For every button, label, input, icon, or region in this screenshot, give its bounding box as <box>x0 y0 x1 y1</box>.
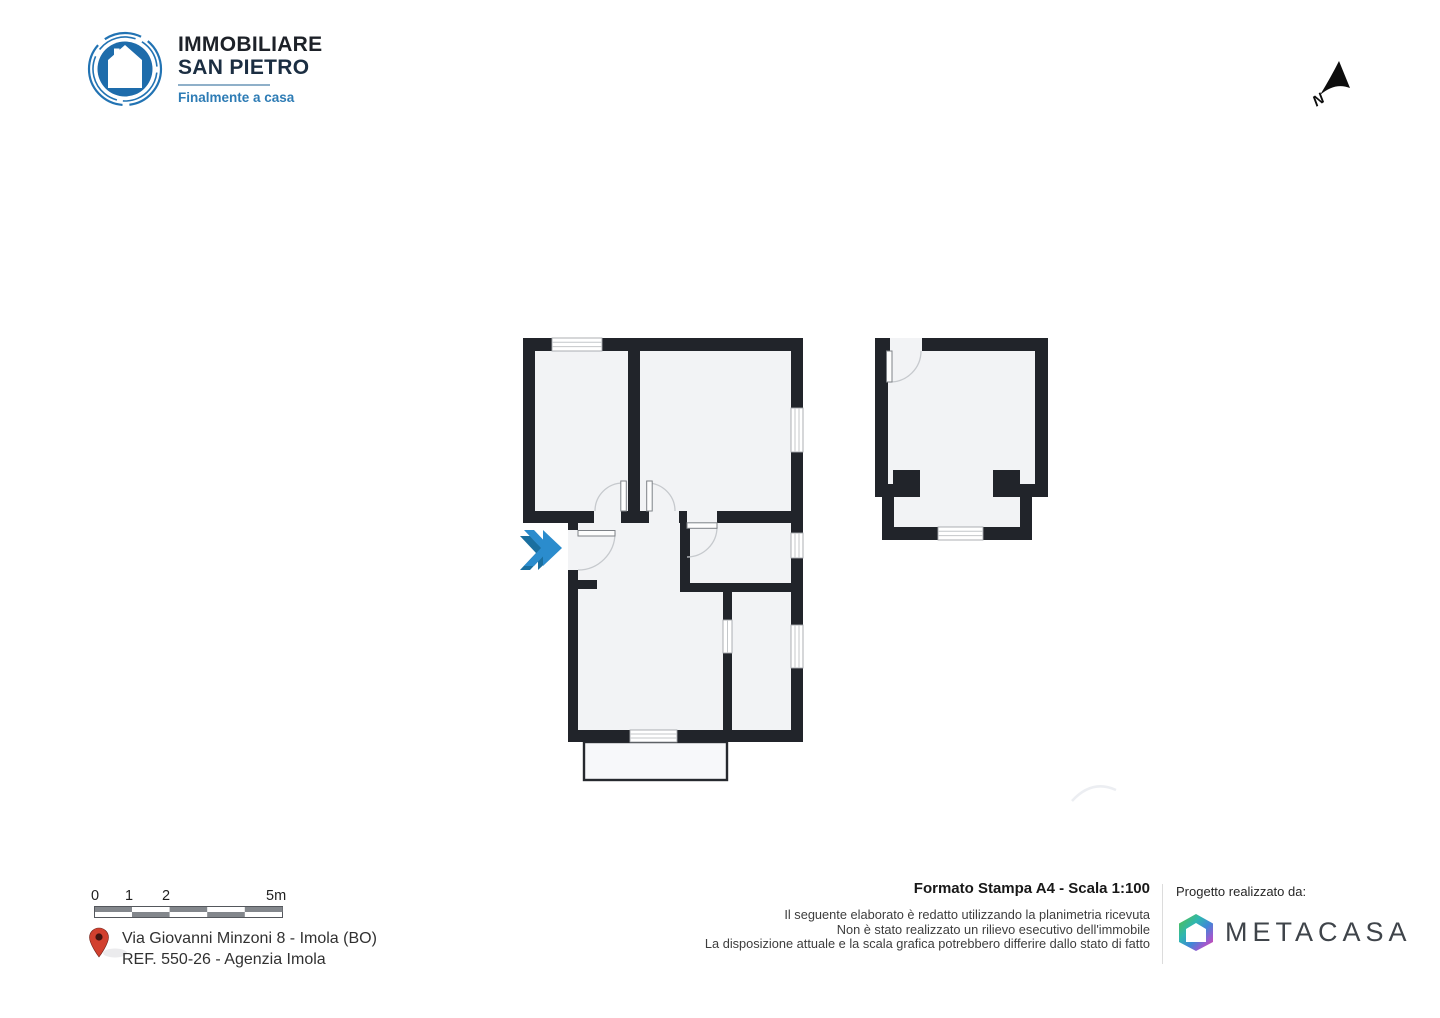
window <box>552 338 602 351</box>
credits-label: Progetto realizzato da: <box>1176 884 1412 899</box>
door-leaf <box>621 481 627 511</box>
address-line2: REF. 550-26 - Agenzia Imola <box>122 949 377 970</box>
floor-plan-drawing <box>505 330 1125 805</box>
agency-name-line1: IMMOBILIARE <box>178 33 322 56</box>
window <box>791 625 803 668</box>
agency-logo-text: IMMOBILIARE SAN PIETRO Finalmente a casa <box>178 33 322 105</box>
credits-divider <box>1162 884 1163 964</box>
scale-bar <box>94 906 284 919</box>
property-address: Via Giovanni Minzoni 8 - Imola (BO) REF.… <box>122 928 377 970</box>
metacasa-brand-name: METACASA <box>1225 917 1412 948</box>
north-arrow-icon: N <box>1306 56 1358 110</box>
door-leaf <box>887 351 893 382</box>
window <box>938 527 983 540</box>
scale-label-0: 0 <box>91 888 99 904</box>
window <box>791 533 803 558</box>
scale-label-1: 1 <box>125 888 133 904</box>
agency-logo: IMMOBILIARE SAN PIETRO Finalmente a casa <box>86 30 322 108</box>
address-line1: Via Giovanni Minzoni 8 - Imola (BO) <box>122 928 377 949</box>
window <box>791 408 803 452</box>
door-leaf <box>578 531 615 537</box>
agency-tagline: Finalmente a casa <box>178 90 322 105</box>
scale-label-2: 2 <box>162 888 170 904</box>
faint-artifact <box>1072 786 1116 801</box>
door-leaf <box>687 523 717 529</box>
print-info: Formato Stampa A4 - Scala 1:100 Il segue… <box>650 880 1150 952</box>
disclaimer-line2: Non è stato realizzato un rilievo esecut… <box>650 923 1150 938</box>
scale-label-5m: 5m <box>266 888 286 904</box>
north-label: N <box>1310 90 1329 110</box>
scale-bar-labels: 0 1 2 5m <box>94 888 314 906</box>
balcony <box>584 742 727 780</box>
disclaimer-line3: La disposizione attuale e la scala grafi… <box>650 937 1150 952</box>
room-fills <box>523 338 1048 780</box>
door-leaf <box>647 481 653 511</box>
disclaimer-line1: Il seguente elaborato è redatto utilizza… <box>650 908 1150 923</box>
internal-window <box>723 620 732 653</box>
agency-house-icon <box>86 30 164 108</box>
entrance-marker-icon <box>520 530 562 570</box>
print-format-title: Formato Stampa A4 - Scala 1:100 <box>650 880 1150 897</box>
floor-plan-page: IMMOBILIARE SAN PIETRO Finalmente a casa… <box>0 0 1440 1018</box>
agency-name-line2: SAN PIETRO <box>178 56 322 79</box>
agency-logo-divider <box>178 84 270 86</box>
credits-block: Progetto realizzato da: METACASA <box>1176 884 1412 953</box>
metacasa-logo-icon <box>1176 912 1216 953</box>
window <box>630 730 677 742</box>
